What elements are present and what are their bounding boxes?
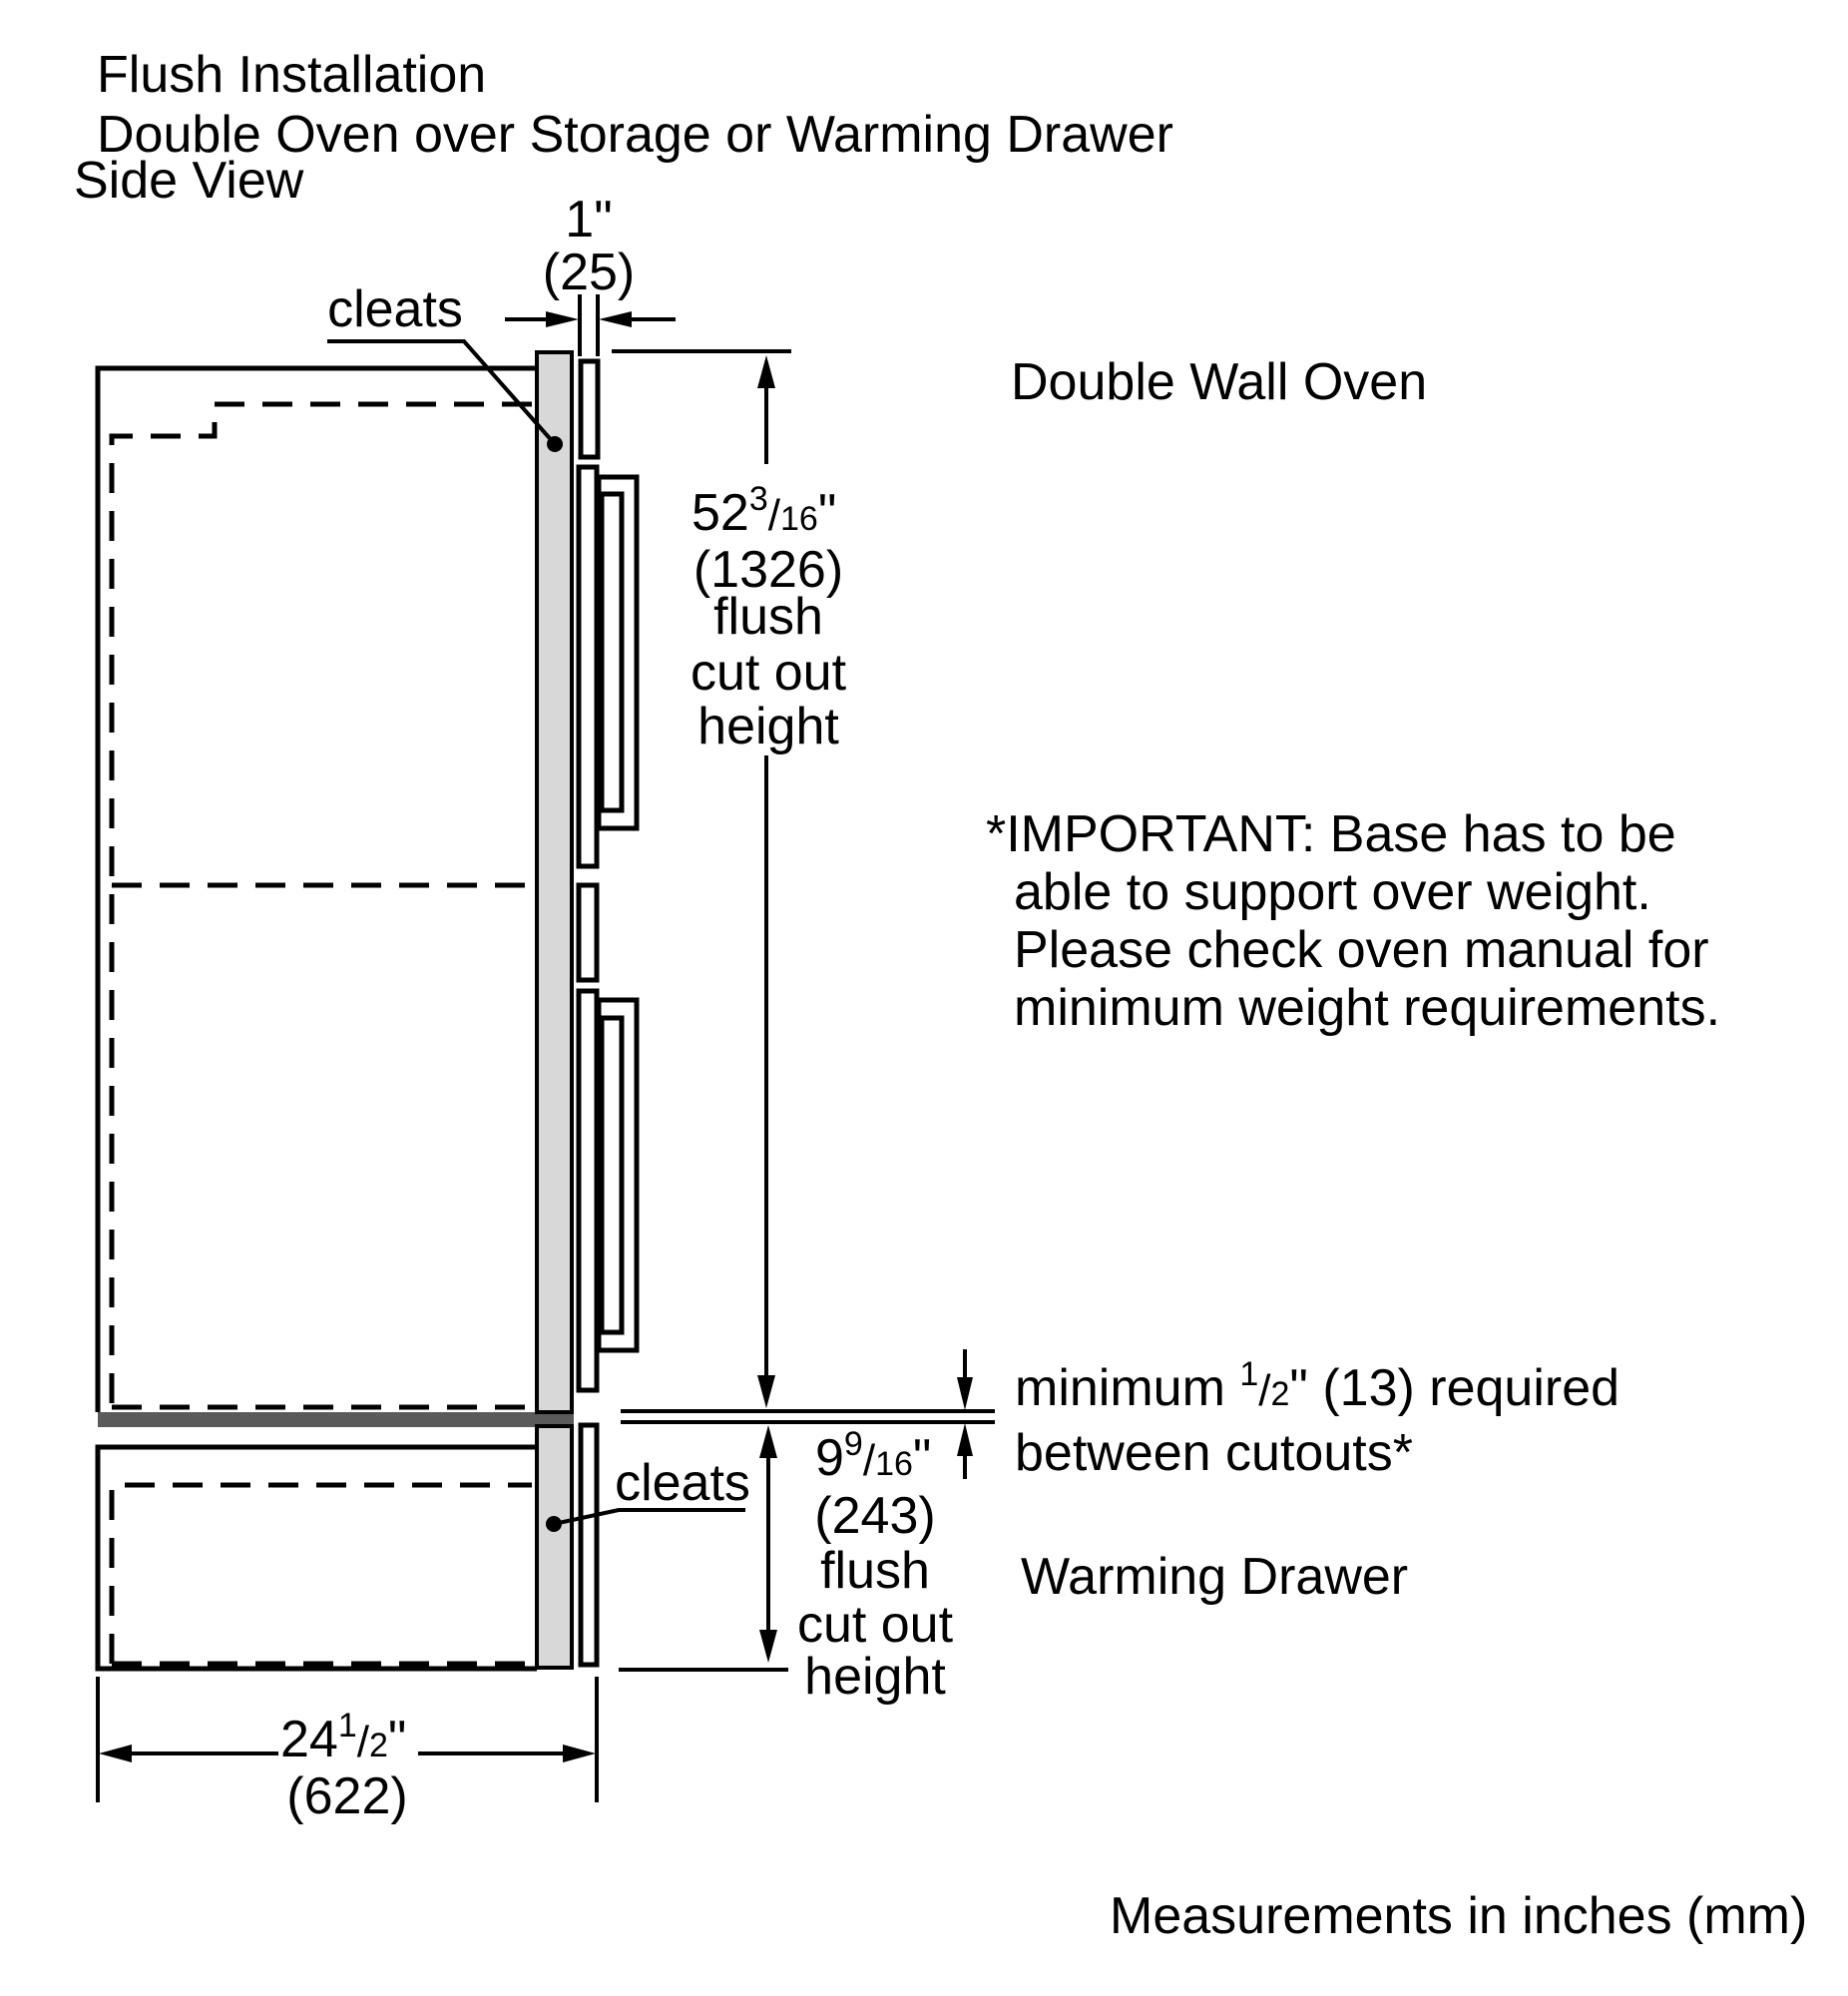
oven-cutout-desc3: height xyxy=(697,698,839,755)
cutout-gap-lines xyxy=(621,1411,995,1422)
min-gap-arrow-down xyxy=(957,1377,973,1410)
upper-cabinet-cutout-dashed xyxy=(112,404,532,1405)
oven-cutout-desc2: cut out xyxy=(691,644,847,702)
drawer-dim-arrow-down xyxy=(759,1630,777,1663)
drawer-dim-frac-slash: / xyxy=(863,1436,876,1485)
important-note: *IMPORTANT: Base has to be able to suppo… xyxy=(986,805,1720,1037)
min-gap-arrow-up xyxy=(957,1423,973,1456)
double-oven-front-profile xyxy=(579,361,637,1390)
depth-dimension-text: 241/2" xyxy=(280,1707,406,1768)
warming-drawer-cabinet xyxy=(98,1425,597,1669)
drawer-cutout-dimension-text: 99/16" xyxy=(815,1425,931,1487)
diagram-title-line1: Flush Installation xyxy=(97,46,486,104)
measurements-footer: Measurements in inches (mm) xyxy=(1110,1887,1807,1945)
depth-arrow-right xyxy=(563,1745,596,1762)
oven-cutout-dimension-text: 523/16" xyxy=(692,480,836,542)
important-note-line3: Please check oven manual for xyxy=(1014,921,1709,979)
drawer-cutout-desc3: height xyxy=(804,1648,946,1706)
cleats-top-label: cleats xyxy=(327,280,463,338)
top-reveal-mm: (25) xyxy=(543,244,635,301)
drawer-cabinet-solid-edge xyxy=(98,1447,537,1669)
drawer-cutout-mm: (243) xyxy=(814,1487,935,1545)
side-view-diagram: Flush Installation Double Oven over Stor… xyxy=(0,0,1848,1996)
min-gap-prefix: minimum xyxy=(1015,1359,1239,1417)
top-reveal-arrow-right xyxy=(599,311,632,327)
drawer-dim-whole: 9 xyxy=(815,1429,844,1487)
cleats-top-leader-dot xyxy=(547,436,563,452)
side-view-label: Side View xyxy=(74,152,304,210)
oven-dim-frac-slash: / xyxy=(768,491,781,540)
cleats-bottom-callout: cleats xyxy=(546,1454,750,1532)
important-note-line1: *IMPORTANT: Base has to be xyxy=(986,805,1676,863)
cleats-top-leader-line xyxy=(327,341,555,444)
lower-cleat-strip xyxy=(537,1426,572,1668)
dimension-min-gap xyxy=(957,1349,973,1479)
upper-cabinet-solid-edge xyxy=(98,368,536,1412)
drawer-front-flange xyxy=(581,1425,597,1665)
depth-dim-frac-den: 2 xyxy=(369,1727,388,1764)
depth-dim-unit: " xyxy=(388,1711,406,1768)
oven-dim-whole: 52 xyxy=(692,484,749,542)
double-wall-oven-label: Double Wall Oven xyxy=(1011,353,1427,411)
drawer-dim-arrow-up xyxy=(759,1425,777,1458)
depth-dim-whole: 24 xyxy=(280,1711,338,1768)
drawer-dim-unit: " xyxy=(913,1429,931,1487)
installation-diagram-page: Flush Installation Double Oven over Stor… xyxy=(0,0,1848,1996)
oven-dim-unit: " xyxy=(818,484,836,542)
cleats-bottom-leader-dot xyxy=(546,1516,562,1532)
drawer-dim-frac-den: 16 xyxy=(875,1445,913,1483)
drawer-cutout-desc2: cut out xyxy=(797,1596,954,1654)
oven-dim-arrow-up xyxy=(757,355,775,388)
min-gap-note: minimum 1/2" (13) required between cutou… xyxy=(1015,1355,1619,1482)
depth-arrow-left xyxy=(99,1745,132,1762)
min-gap-frac-den: 2 xyxy=(1271,1375,1290,1413)
depth-mm: (622) xyxy=(286,1767,407,1825)
oven-top-flange xyxy=(581,361,598,457)
upper-oven-door-inner xyxy=(602,494,622,810)
oven-cutout-desc1: flush xyxy=(713,588,823,646)
important-note-line4: minimum weight requirements. xyxy=(1014,979,1720,1037)
drawer-cutout-dashed xyxy=(112,1485,532,1664)
min-gap-suffix: " (13) required xyxy=(1289,1359,1619,1417)
min-gap-note-line2: between cutouts* xyxy=(1015,1424,1413,1482)
min-gap-frac-slash: / xyxy=(1258,1366,1271,1415)
drawer-cutout-desc1: flush xyxy=(820,1542,930,1600)
cleats-bottom-label: cleats xyxy=(615,1454,750,1512)
depth-dim-frac-slash: / xyxy=(357,1718,370,1766)
top-reveal-arrow-left xyxy=(546,311,579,327)
min-gap-frac-num: 1 xyxy=(1239,1355,1258,1393)
lower-oven-door-inner xyxy=(602,1018,622,1332)
dimension-oven-cutout-height: 523/16" (1326) flush cut out height xyxy=(612,351,847,1408)
dimension-cabinet-depth: 241/2" (622) xyxy=(98,1677,597,1825)
drawer-dim-frac-num: 9 xyxy=(844,1425,863,1463)
oven-dim-frac-num: 3 xyxy=(749,480,768,518)
min-gap-note-line1: minimum 1/2" (13) required xyxy=(1015,1355,1619,1417)
depth-dim-frac-num: 1 xyxy=(338,1707,357,1745)
upper-cabinet-outline xyxy=(98,352,574,1427)
top-reveal-inches: 1" xyxy=(565,191,612,249)
dimension-top-reveal: 1" (25) xyxy=(505,191,676,356)
important-note-line2: able to support over weight. xyxy=(1014,863,1651,921)
mid-oven-flange xyxy=(579,885,597,980)
oven-dim-frac-den: 16 xyxy=(780,500,818,538)
oven-dim-arrow-down xyxy=(757,1375,775,1408)
cabinet-divider-shelf xyxy=(98,1412,574,1427)
upper-cleat-strip xyxy=(537,352,572,1412)
upper-oven-flange xyxy=(579,467,597,866)
warming-drawer-label: Warming Drawer xyxy=(1021,1548,1408,1606)
lower-oven-flange xyxy=(579,991,597,1390)
